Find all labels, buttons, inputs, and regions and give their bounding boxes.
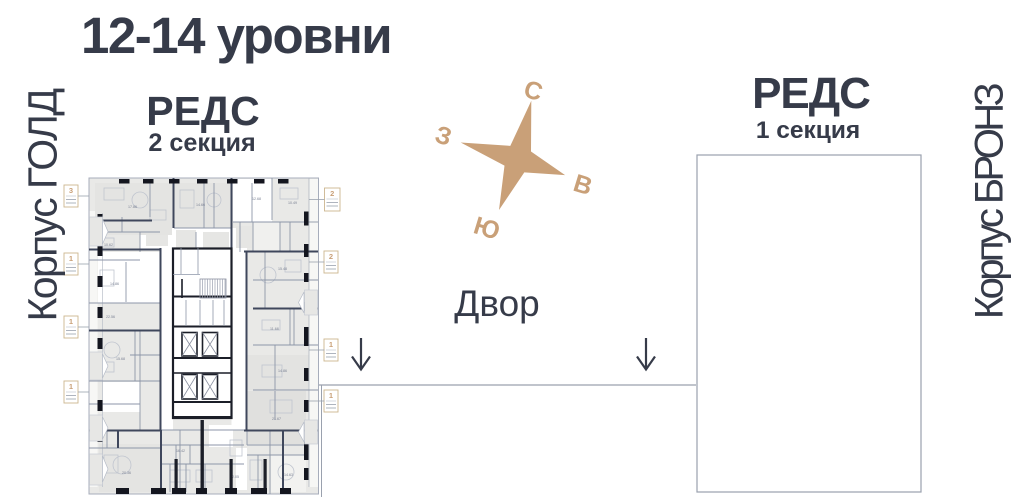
svg-text:2: 2 xyxy=(329,252,333,261)
svg-text:1: 1 xyxy=(69,382,73,391)
svg-text:14.86: 14.86 xyxy=(110,282,119,286)
svg-text:Ю: Ю xyxy=(470,211,503,245)
svg-text:15.68: 15.68 xyxy=(116,357,125,361)
svg-text:1: 1 xyxy=(329,391,333,400)
svg-text:11.68: 11.68 xyxy=(270,327,279,331)
svg-text:15.48: 15.48 xyxy=(278,267,287,271)
svg-text:12.68: 12.68 xyxy=(252,197,261,201)
svg-text:10.62: 10.62 xyxy=(104,243,113,247)
svg-text:З: З xyxy=(432,120,455,151)
svg-text:В: В xyxy=(570,169,595,201)
svg-text:3: 3 xyxy=(69,186,73,195)
svg-text:21.67: 21.67 xyxy=(272,417,281,421)
svg-text:14.86: 14.86 xyxy=(278,369,287,373)
svg-text:16.42: 16.42 xyxy=(176,449,185,453)
svg-text:22.56: 22.56 xyxy=(106,315,115,319)
svg-text:20.36: 20.36 xyxy=(122,471,131,475)
svg-text:С: С xyxy=(520,75,545,107)
svg-text:10.49: 10.49 xyxy=(288,201,297,205)
svg-text:1: 1 xyxy=(329,340,333,349)
svg-text:14.63: 14.63 xyxy=(284,473,293,477)
svg-text:17.86: 17.86 xyxy=(128,205,137,209)
svg-text:1: 1 xyxy=(69,254,73,263)
svg-text:14.66: 14.66 xyxy=(196,203,205,207)
svg-text:2: 2 xyxy=(330,189,334,198)
svg-text:1: 1 xyxy=(69,317,73,326)
